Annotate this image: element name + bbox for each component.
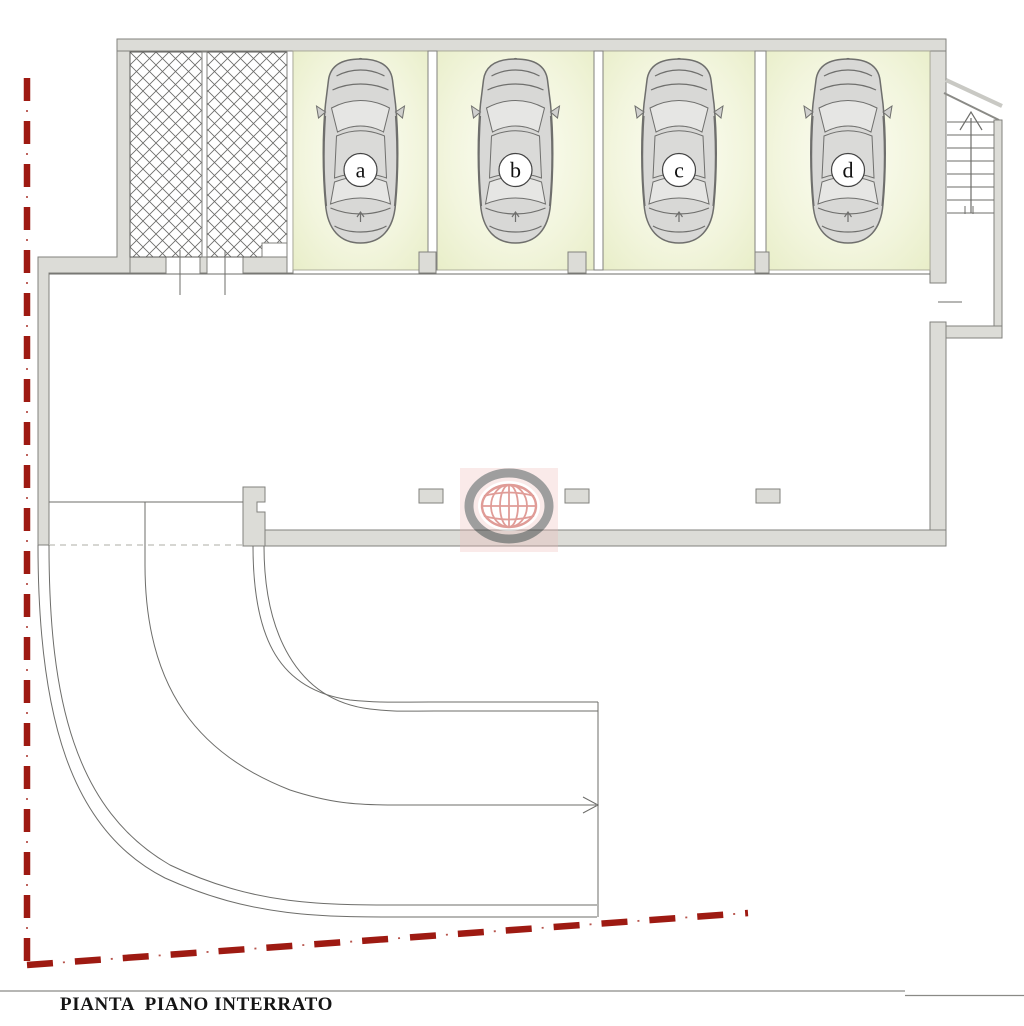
- car-top-view-icon: [804, 59, 892, 244]
- boundary-line-bottom: [27, 913, 748, 965]
- globe-grid: [482, 485, 536, 527]
- bottom-wall: [255, 530, 946, 546]
- ramp: [38, 502, 598, 917]
- cellar-divider-wall: [202, 52, 207, 257]
- column: [565, 489, 589, 503]
- stall-letter-d: d: [843, 158, 854, 183]
- stall-divider-wall: [594, 51, 603, 270]
- cellar-bottom-wall-segment: [130, 257, 166, 273]
- stall-letter-a: a: [356, 158, 366, 183]
- ramp-outer-wall-line: [38, 545, 597, 917]
- floor-plan: a b c d: [0, 0, 1024, 1026]
- right-wall-upper: [930, 51, 946, 283]
- car-top-view-icon: [635, 59, 723, 244]
- divider-end-pier: [755, 252, 769, 273]
- top-wall: [117, 39, 946, 51]
- cellar-door-pier: [200, 257, 207, 273]
- stall-letter-b: b: [510, 158, 521, 183]
- floor-plan-drawing: a b c d: [0, 0, 1024, 1026]
- stall-letter-c: c: [674, 158, 684, 183]
- stairs: [938, 80, 1002, 338]
- cellar-notch: [262, 243, 287, 257]
- cellar-room-1: [130, 52, 202, 257]
- stair-right-wall: [994, 120, 1002, 338]
- ramp-inner-wall-line: [253, 546, 598, 702]
- ramp-outer-wall-line: [49, 545, 597, 905]
- ramp-inner-wall-line: [264, 546, 598, 711]
- ramp-corner-wall: [243, 487, 265, 546]
- car-top-view-icon: [317, 59, 405, 244]
- up-arrow-icon: [960, 112, 982, 213]
- globe-logo: [460, 468, 558, 552]
- stall-divider-wall: [755, 51, 766, 270]
- cellar-garage-wall: [287, 51, 293, 273]
- stair-upper-edge: [946, 80, 1002, 106]
- column: [419, 489, 443, 503]
- car-top-view-icon: [472, 59, 560, 244]
- drawing-caption: PIANTA PIANO INTERRATO: [60, 994, 460, 1016]
- stall-divider-wall: [428, 51, 437, 270]
- divider-end-pier: [419, 252, 436, 273]
- column: [756, 489, 780, 503]
- cellar-room-2: [207, 52, 287, 257]
- right-wall-lower: [930, 322, 946, 546]
- divider-end-pier: [568, 252, 586, 273]
- stair-bottom-wall: [946, 326, 1002, 338]
- stair-diagonal-wall: [944, 93, 999, 120]
- left-wall: [38, 51, 130, 545]
